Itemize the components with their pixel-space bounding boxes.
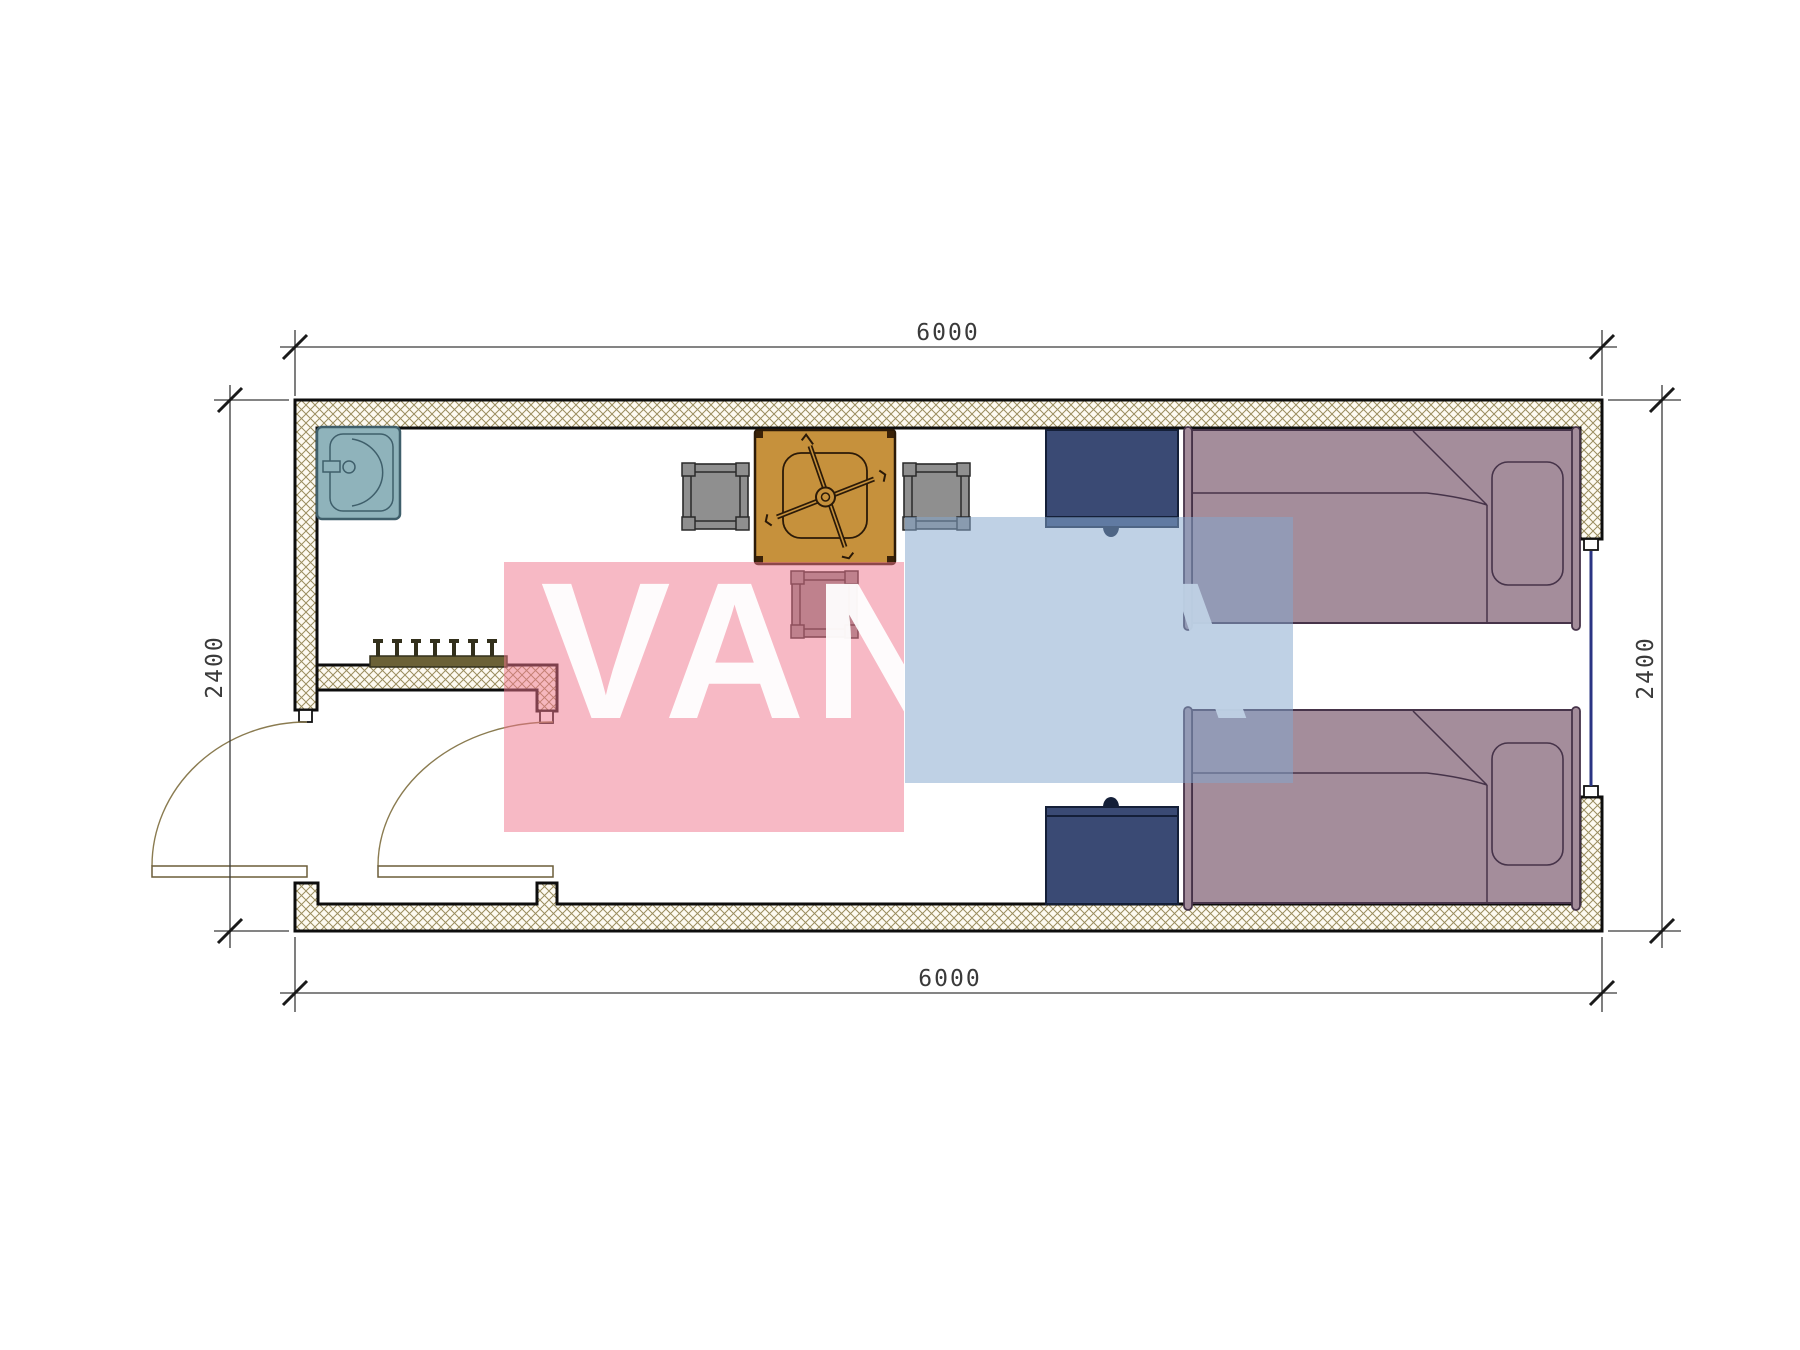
dimension-label-left: 2400 bbox=[202, 635, 228, 698]
dimension-bottom: 6000 bbox=[280, 937, 1617, 1012]
floor-plan-canvas: 6000 6000 2400 2400 VANDA bbox=[0, 0, 1800, 1350]
chair-left bbox=[682, 463, 749, 530]
window-jamb bbox=[1584, 786, 1598, 797]
headboard bbox=[1572, 707, 1580, 910]
headboard bbox=[1572, 427, 1580, 630]
dimension-top: 6000 bbox=[280, 320, 1617, 396]
coat-rack-hooks bbox=[373, 639, 497, 656]
watermark: VANDA bbox=[504, 517, 1293, 832]
cabinet-handle bbox=[1103, 797, 1119, 807]
sink bbox=[317, 427, 400, 519]
window-jamb bbox=[1584, 539, 1598, 550]
dimension-label-top: 6000 bbox=[916, 320, 979, 346]
floor-plan-drawing: 6000 6000 2400 2400 VANDA bbox=[0, 0, 1800, 1350]
sink-faucet bbox=[323, 461, 340, 472]
coat-rack-bar bbox=[370, 656, 507, 667]
watermark-blue-rect bbox=[905, 517, 1293, 783]
coat-rack bbox=[370, 639, 507, 667]
dimension-label-right: 2400 bbox=[1633, 636, 1659, 699]
dimension-right: 2400 bbox=[1608, 385, 1681, 948]
dimension-left: 2400 bbox=[202, 385, 289, 948]
door-jamb bbox=[299, 710, 312, 722]
dimension-label-bottom: 6000 bbox=[918, 966, 981, 992]
door-leaf bbox=[378, 866, 553, 877]
cabinet-bottom bbox=[1046, 797, 1178, 904]
